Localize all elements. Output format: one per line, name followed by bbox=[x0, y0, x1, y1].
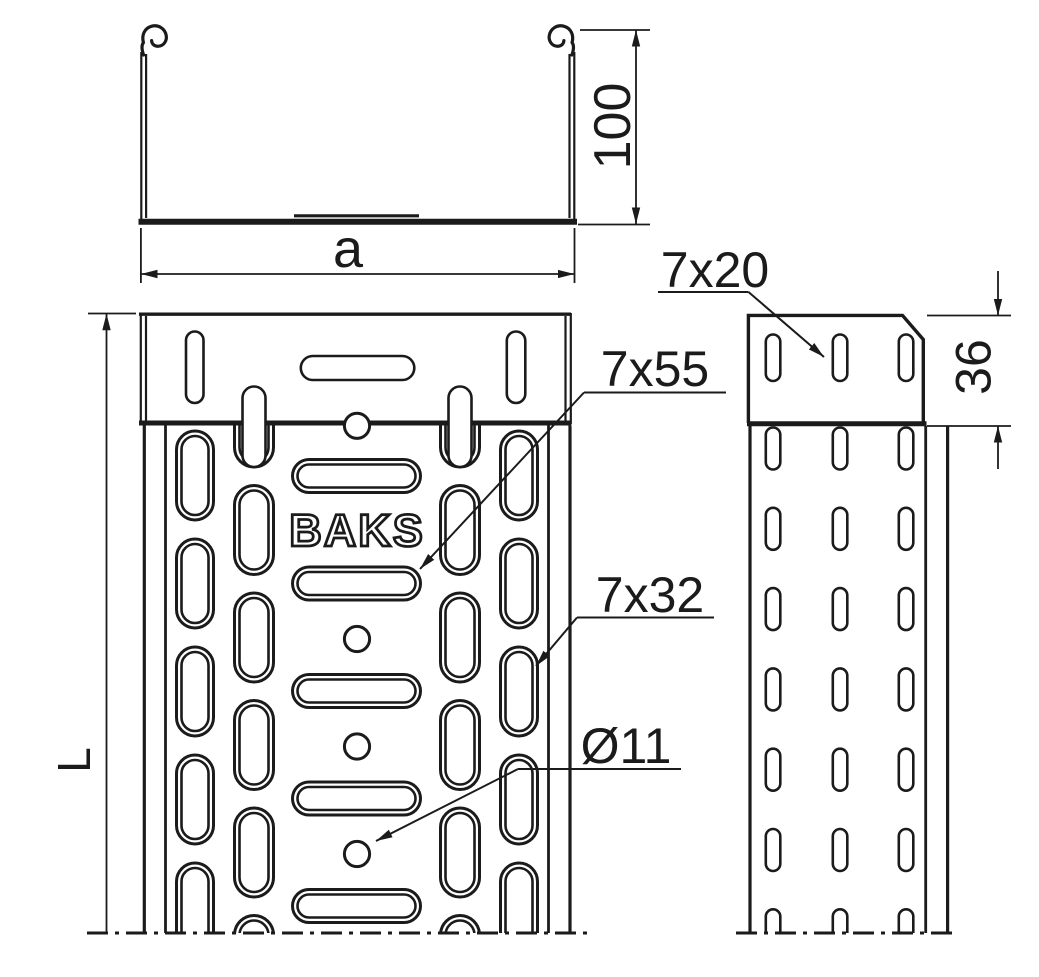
plate-joint-slot bbox=[449, 387, 472, 468]
plan-view: BAKS L 7x55 7x32 Ø11 bbox=[48, 313, 726, 977]
side-slot bbox=[899, 428, 914, 470]
side-slot bbox=[899, 668, 914, 710]
side-view: 7x20 36 bbox=[658, 242, 1011, 951]
plate-center-slot bbox=[301, 356, 415, 380]
side-slot bbox=[833, 829, 848, 871]
connector-height-dimension: 36 bbox=[927, 271, 1011, 469]
leader-line bbox=[420, 393, 584, 570]
side-slot bbox=[766, 588, 781, 630]
plate-slot bbox=[899, 335, 914, 382]
mounting-hole bbox=[344, 734, 369, 759]
height-dim-label: 100 bbox=[584, 83, 642, 170]
width-dim-label: a bbox=[333, 219, 364, 279]
side-slot bbox=[899, 749, 914, 791]
mounting-hole bbox=[344, 626, 369, 651]
side-slot bbox=[766, 909, 781, 951]
side-slot bbox=[766, 428, 781, 470]
plate-slot bbox=[186, 332, 204, 404]
cable-tray-technical-drawing: 100 a bbox=[0, 0, 1039, 977]
side-connector-plate bbox=[747, 315, 927, 423]
body-perforations bbox=[177, 378, 538, 977]
plate-slot bbox=[833, 335, 848, 382]
side-slot bbox=[833, 428, 848, 470]
side-slot bbox=[766, 829, 781, 871]
side-slot bbox=[899, 909, 914, 951]
perforation-slot bbox=[441, 916, 480, 977]
cross-section-view: 100 a bbox=[139, 26, 651, 283]
side-slot bbox=[766, 508, 781, 550]
plate-slot bbox=[507, 332, 526, 404]
drawing-svg: 100 a bbox=[0, 0, 1039, 977]
perforation-slot bbox=[235, 916, 274, 977]
right-hook-edge bbox=[549, 26, 573, 55]
side-slot bbox=[899, 829, 914, 871]
side-slot-label: 7x20 bbox=[661, 242, 769, 298]
side-slot bbox=[833, 909, 848, 951]
leader-line bbox=[749, 292, 825, 357]
side-slot bbox=[833, 508, 848, 550]
left-hook-edge bbox=[142, 26, 166, 55]
side-slot bbox=[899, 508, 914, 550]
label-side-slot: 7x20 bbox=[658, 242, 824, 357]
side-slot bbox=[833, 668, 848, 710]
label-flange-slot: 7x32 bbox=[536, 567, 714, 666]
side-perforations bbox=[766, 428, 914, 952]
side-slot bbox=[899, 588, 914, 630]
side-slot bbox=[766, 749, 781, 791]
side-slot bbox=[766, 668, 781, 710]
plate-joint-slot bbox=[243, 387, 266, 468]
connector-height-dim-label: 36 bbox=[946, 339, 1002, 395]
side-slot bbox=[833, 588, 848, 630]
center-slot-label: 7x55 bbox=[601, 341, 709, 397]
plate-slot bbox=[766, 335, 781, 382]
mounting-hole bbox=[344, 841, 369, 866]
length-dimension: L bbox=[48, 314, 136, 934]
side-slot bbox=[833, 749, 848, 791]
width-dimension: a bbox=[141, 219, 575, 283]
hole-diameter-label: Ø11 bbox=[581, 718, 672, 774]
length-dim-label: L bbox=[48, 747, 100, 773]
height-dimension: 100 bbox=[578, 30, 650, 225]
flange-slot-label: 7x32 bbox=[596, 567, 704, 623]
brand-text: BAKS bbox=[289, 505, 425, 556]
mounting-hole bbox=[344, 413, 369, 438]
